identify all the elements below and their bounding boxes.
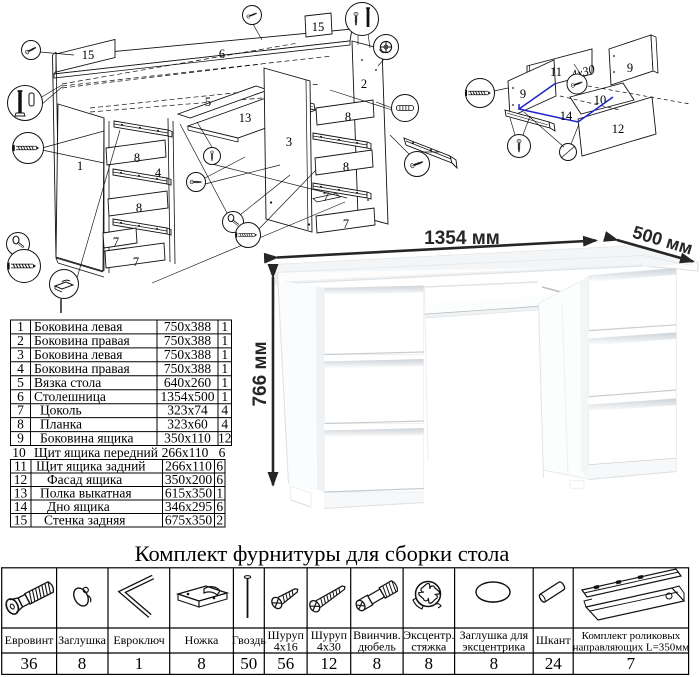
- svg-text:7: 7: [133, 255, 139, 269]
- svg-text:7: 7: [113, 235, 119, 249]
- svg-text:1: 1: [221, 375, 228, 390]
- svg-text:10: 10: [594, 93, 607, 107]
- svg-text:Шкант: Шкант: [536, 633, 572, 647]
- svg-text:1: 1: [221, 361, 228, 376]
- svg-text:8: 8: [197, 654, 206, 673]
- svg-text:Столешница: Столешница: [34, 389, 106, 404]
- svg-text:6: 6: [219, 47, 225, 61]
- svg-text:1354 мм: 1354 мм: [424, 228, 500, 249]
- svg-text:эксцентрика: эксцентрика: [462, 640, 526, 654]
- svg-text:Боковина левая: Боковина левая: [34, 347, 122, 362]
- svg-text:2: 2: [216, 512, 223, 527]
- svg-text:9: 9: [627, 61, 633, 75]
- svg-text:4: 4: [17, 361, 24, 376]
- svg-text:8: 8: [373, 654, 382, 673]
- svg-text:5: 5: [17, 375, 24, 390]
- svg-text:13: 13: [239, 111, 252, 125]
- svg-text:8: 8: [490, 654, 499, 673]
- svg-text:4: 4: [221, 403, 228, 418]
- svg-text:350x110: 350x110: [164, 431, 211, 446]
- svg-text:Гвоздь: Гвоздь: [232, 633, 267, 647]
- svg-text:8: 8: [17, 417, 24, 432]
- svg-text:Ножка: Ножка: [185, 633, 219, 647]
- svg-text:8: 8: [78, 654, 87, 673]
- svg-text:675x350: 675x350: [165, 512, 213, 527]
- svg-text:Боковина правая: Боковина правая: [34, 361, 130, 376]
- svg-text:Евроключ: Евроключ: [113, 633, 164, 647]
- svg-text:8: 8: [425, 654, 434, 673]
- svg-text:3: 3: [17, 347, 24, 362]
- svg-text:Вязка стола: Вязка стола: [34, 375, 101, 390]
- svg-text:4: 4: [221, 417, 228, 432]
- svg-text:дюбель: дюбель: [358, 640, 396, 654]
- svg-text:Комплект роликовых: Комплект роликовых: [582, 630, 681, 642]
- svg-text:1354x500: 1354x500: [161, 389, 215, 404]
- svg-text:640x260: 640x260: [164, 375, 212, 390]
- svg-text:8: 8: [136, 201, 142, 215]
- svg-text:1: 1: [135, 654, 144, 673]
- svg-text:стяжка: стяжка: [411, 640, 447, 654]
- svg-text:15: 15: [14, 512, 28, 527]
- svg-text:9: 9: [17, 431, 24, 446]
- svg-text:1: 1: [77, 159, 83, 173]
- svg-text:36: 36: [21, 654, 38, 673]
- svg-text:750x388: 750x388: [164, 333, 212, 348]
- svg-text:4x30: 4x30: [317, 640, 341, 654]
- svg-text:8: 8: [343, 160, 349, 174]
- svg-text:Стенка задняя: Стенка задняя: [44, 512, 126, 527]
- svg-text:323x74: 323x74: [167, 403, 208, 418]
- svg-text:7: 7: [627, 654, 636, 673]
- svg-text:1: 1: [221, 389, 228, 404]
- svg-text:6: 6: [17, 389, 24, 404]
- svg-text:12: 12: [218, 431, 232, 446]
- svg-text:2: 2: [361, 77, 367, 91]
- svg-text:766 мм: 766 мм: [250, 341, 271, 406]
- svg-text:Евровинт: Евровинт: [5, 633, 55, 647]
- svg-text:12: 12: [320, 654, 337, 673]
- svg-text:750x388: 750x388: [164, 319, 212, 334]
- svg-text:Боковина левая: Боковина левая: [34, 319, 122, 334]
- svg-text:15: 15: [312, 20, 325, 34]
- svg-text:7: 7: [17, 403, 24, 418]
- svg-text:12: 12: [612, 122, 625, 136]
- svg-text:1: 1: [221, 347, 228, 362]
- svg-text:7: 7: [343, 217, 349, 231]
- svg-text:3: 3: [286, 135, 292, 149]
- svg-text:56: 56: [277, 654, 294, 673]
- svg-text:750x388: 750x388: [164, 347, 212, 362]
- svg-text:323x60: 323x60: [167, 417, 208, 432]
- svg-text:5: 5: [205, 95, 211, 109]
- svg-text:24: 24: [545, 654, 563, 673]
- svg-text:Заглушка: Заглушка: [58, 633, 107, 647]
- svg-text:11: 11: [550, 65, 562, 79]
- svg-text:14: 14: [560, 109, 573, 123]
- svg-text:Боковина правая: Боковина правая: [34, 333, 130, 348]
- svg-text:направляющих L=350мм: направляющих L=350мм: [573, 642, 690, 654]
- svg-text:50: 50: [240, 654, 257, 673]
- svg-text:1: 1: [221, 319, 228, 334]
- svg-text:8: 8: [134, 151, 140, 165]
- svg-text:Боковина ящика: Боковина ящика: [40, 431, 134, 446]
- svg-text:Планка: Планка: [40, 417, 82, 432]
- svg-text:9: 9: [520, 87, 526, 101]
- svg-text:15: 15: [82, 48, 95, 62]
- svg-text:Комплект фурнитуры для сборки: Комплект фурнитуры для сборки стола: [135, 541, 510, 566]
- svg-text:1: 1: [17, 319, 24, 334]
- svg-text:1: 1: [221, 333, 228, 348]
- svg-text:Цоколь: Цоколь: [40, 403, 82, 418]
- svg-text:750x388: 750x388: [164, 361, 212, 376]
- svg-text:2: 2: [17, 333, 24, 348]
- svg-text:4x16: 4x16: [274, 640, 298, 654]
- svg-text:8: 8: [345, 110, 351, 124]
